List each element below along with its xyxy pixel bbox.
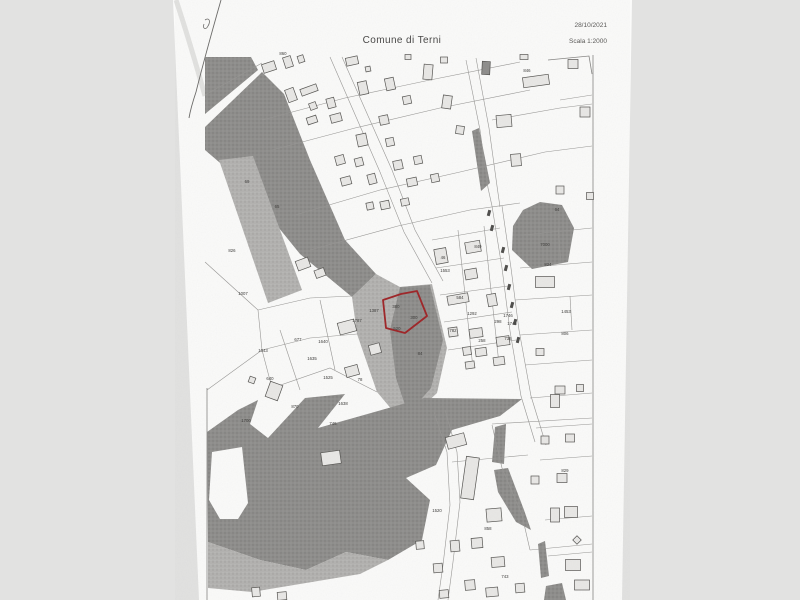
map-scale: Scala 1:2000 <box>517 38 607 45</box>
scan-noise-overlay <box>175 0 630 600</box>
scanned-document: 1453647000380300520138717876771640163515… <box>0 0 800 600</box>
map-title: Comune di Terni <box>302 35 502 46</box>
cadastral-map-canvas: 1453647000380300520138717876771640163515… <box>0 0 800 600</box>
print-date: 28/10/2021 <box>517 22 607 29</box>
